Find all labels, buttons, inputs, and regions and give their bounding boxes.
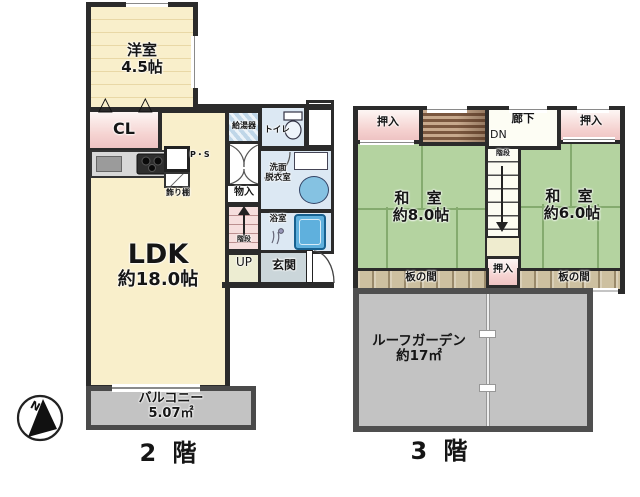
floorplan-canvas: 洋室 4.5帖 CL △ △ P・S 飾り棚 LDK 約18.0帖 <box>0 0 640 497</box>
senmen-line1: 洗面 <box>269 163 286 173</box>
roof-garden-size: 約17㎡ <box>396 348 442 364</box>
itanoma-right-label: 板の間 <box>543 272 605 284</box>
pipe-space-label: P・S <box>190 151 216 160</box>
bathtub <box>294 214 326 250</box>
up-label: UP <box>228 256 260 269</box>
shower-icon <box>268 227 288 247</box>
double-door-arc <box>228 144 260 169</box>
bathtub-inner <box>299 219 321 245</box>
wash-basin <box>299 176 329 204</box>
oshiire-center-label: 押入 <box>486 264 520 275</box>
youshitsu-size: 4.5帖 <box>121 58 163 76</box>
stairs-landing <box>485 236 521 258</box>
stove-icon <box>128 153 168 175</box>
window <box>427 106 467 113</box>
room-ldk-label: LDK 約18.0帖 <box>94 240 222 290</box>
rouka-label: 廊下 <box>494 112 552 125</box>
balcony-size: 5.07㎡ <box>148 406 193 421</box>
itanoma-left-label: 板の間 <box>390 272 452 284</box>
oshiire-right-label: 押入 <box>562 115 620 127</box>
senmen-line2: 脱衣室 <box>265 173 291 183</box>
folding-door-icon: △ <box>138 95 153 114</box>
washitsu8-name: 和 室 <box>394 189 447 207</box>
washitsu6-name: 和 室 <box>545 187 598 205</box>
youshitsu-name: 洋室 <box>127 41 157 59</box>
garden-divider-block <box>479 384 496 392</box>
ldk-name: LDK <box>128 239 189 270</box>
balcony-label: バルコニー 5.07㎡ <box>96 392 246 421</box>
sliding-door <box>563 137 615 142</box>
window <box>577 106 609 113</box>
entrance-door-arc <box>313 250 335 284</box>
window <box>126 0 168 7</box>
washitsu6-size: 約6.0帖 <box>544 204 601 222</box>
toilet-label: トイレ <box>260 126 294 136</box>
ldk-size: 約18.0帖 <box>118 269 198 290</box>
bath-label: 浴室 <box>262 215 294 225</box>
stairs-down-arrowhead <box>496 222 508 232</box>
double-door-arc <box>228 167 260 185</box>
washitsu-8-label: 和 室 約8.0帖 <box>366 190 476 224</box>
oshiire-left-label: 押入 <box>358 116 418 128</box>
garden-divider <box>486 294 490 426</box>
folding-door-icon: △ <box>98 95 113 114</box>
stairs-2f-label: 階段 <box>228 236 260 244</box>
entrance-door-leaf <box>306 250 313 283</box>
stairs-down-arrow <box>501 166 503 222</box>
roof-garden-name: ルーフガーデン <box>372 333 466 349</box>
senmen-label: 洗面 脱衣室 <box>258 164 298 183</box>
monoire-label: 物入 <box>226 187 262 198</box>
window <box>592 288 618 294</box>
garden-divider-block <box>479 330 496 338</box>
roof-garden-label: ルーフガーデン 約17㎡ <box>358 334 480 364</box>
floor-3-label: 3 階 <box>386 438 496 465</box>
genkan-label: 玄関 <box>262 259 306 272</box>
dn-label: DN <box>490 129 520 141</box>
floor-2-label: 2 階 <box>100 440 240 467</box>
balcony-name: バルコニー <box>139 391 204 406</box>
stairs-up-arrowhead <box>238 206 250 215</box>
washitsu8-size: 約8.0帖 <box>393 206 450 224</box>
decor-shelf-box <box>164 172 190 188</box>
shaft-box <box>306 100 334 148</box>
window <box>191 36 198 88</box>
washitsu-6-label: 和 室 約6.0帖 <box>527 188 617 222</box>
room-cl-label: CL <box>94 120 154 138</box>
pipe-space-box <box>164 146 190 172</box>
room-youshitsu-label: 洋室 4.5帖 <box>92 42 192 76</box>
kyutouki-label: 給湯器 <box>226 122 262 131</box>
vanity-sink <box>294 152 328 170</box>
compass-icon: N <box>16 392 66 444</box>
window <box>509 106 547 113</box>
decor-shelf-label: 飾り棚 <box>158 189 198 198</box>
stairs-3f-label: 階段 <box>487 150 519 158</box>
sliding-door <box>360 140 414 145</box>
kitchen-sink <box>96 156 122 172</box>
